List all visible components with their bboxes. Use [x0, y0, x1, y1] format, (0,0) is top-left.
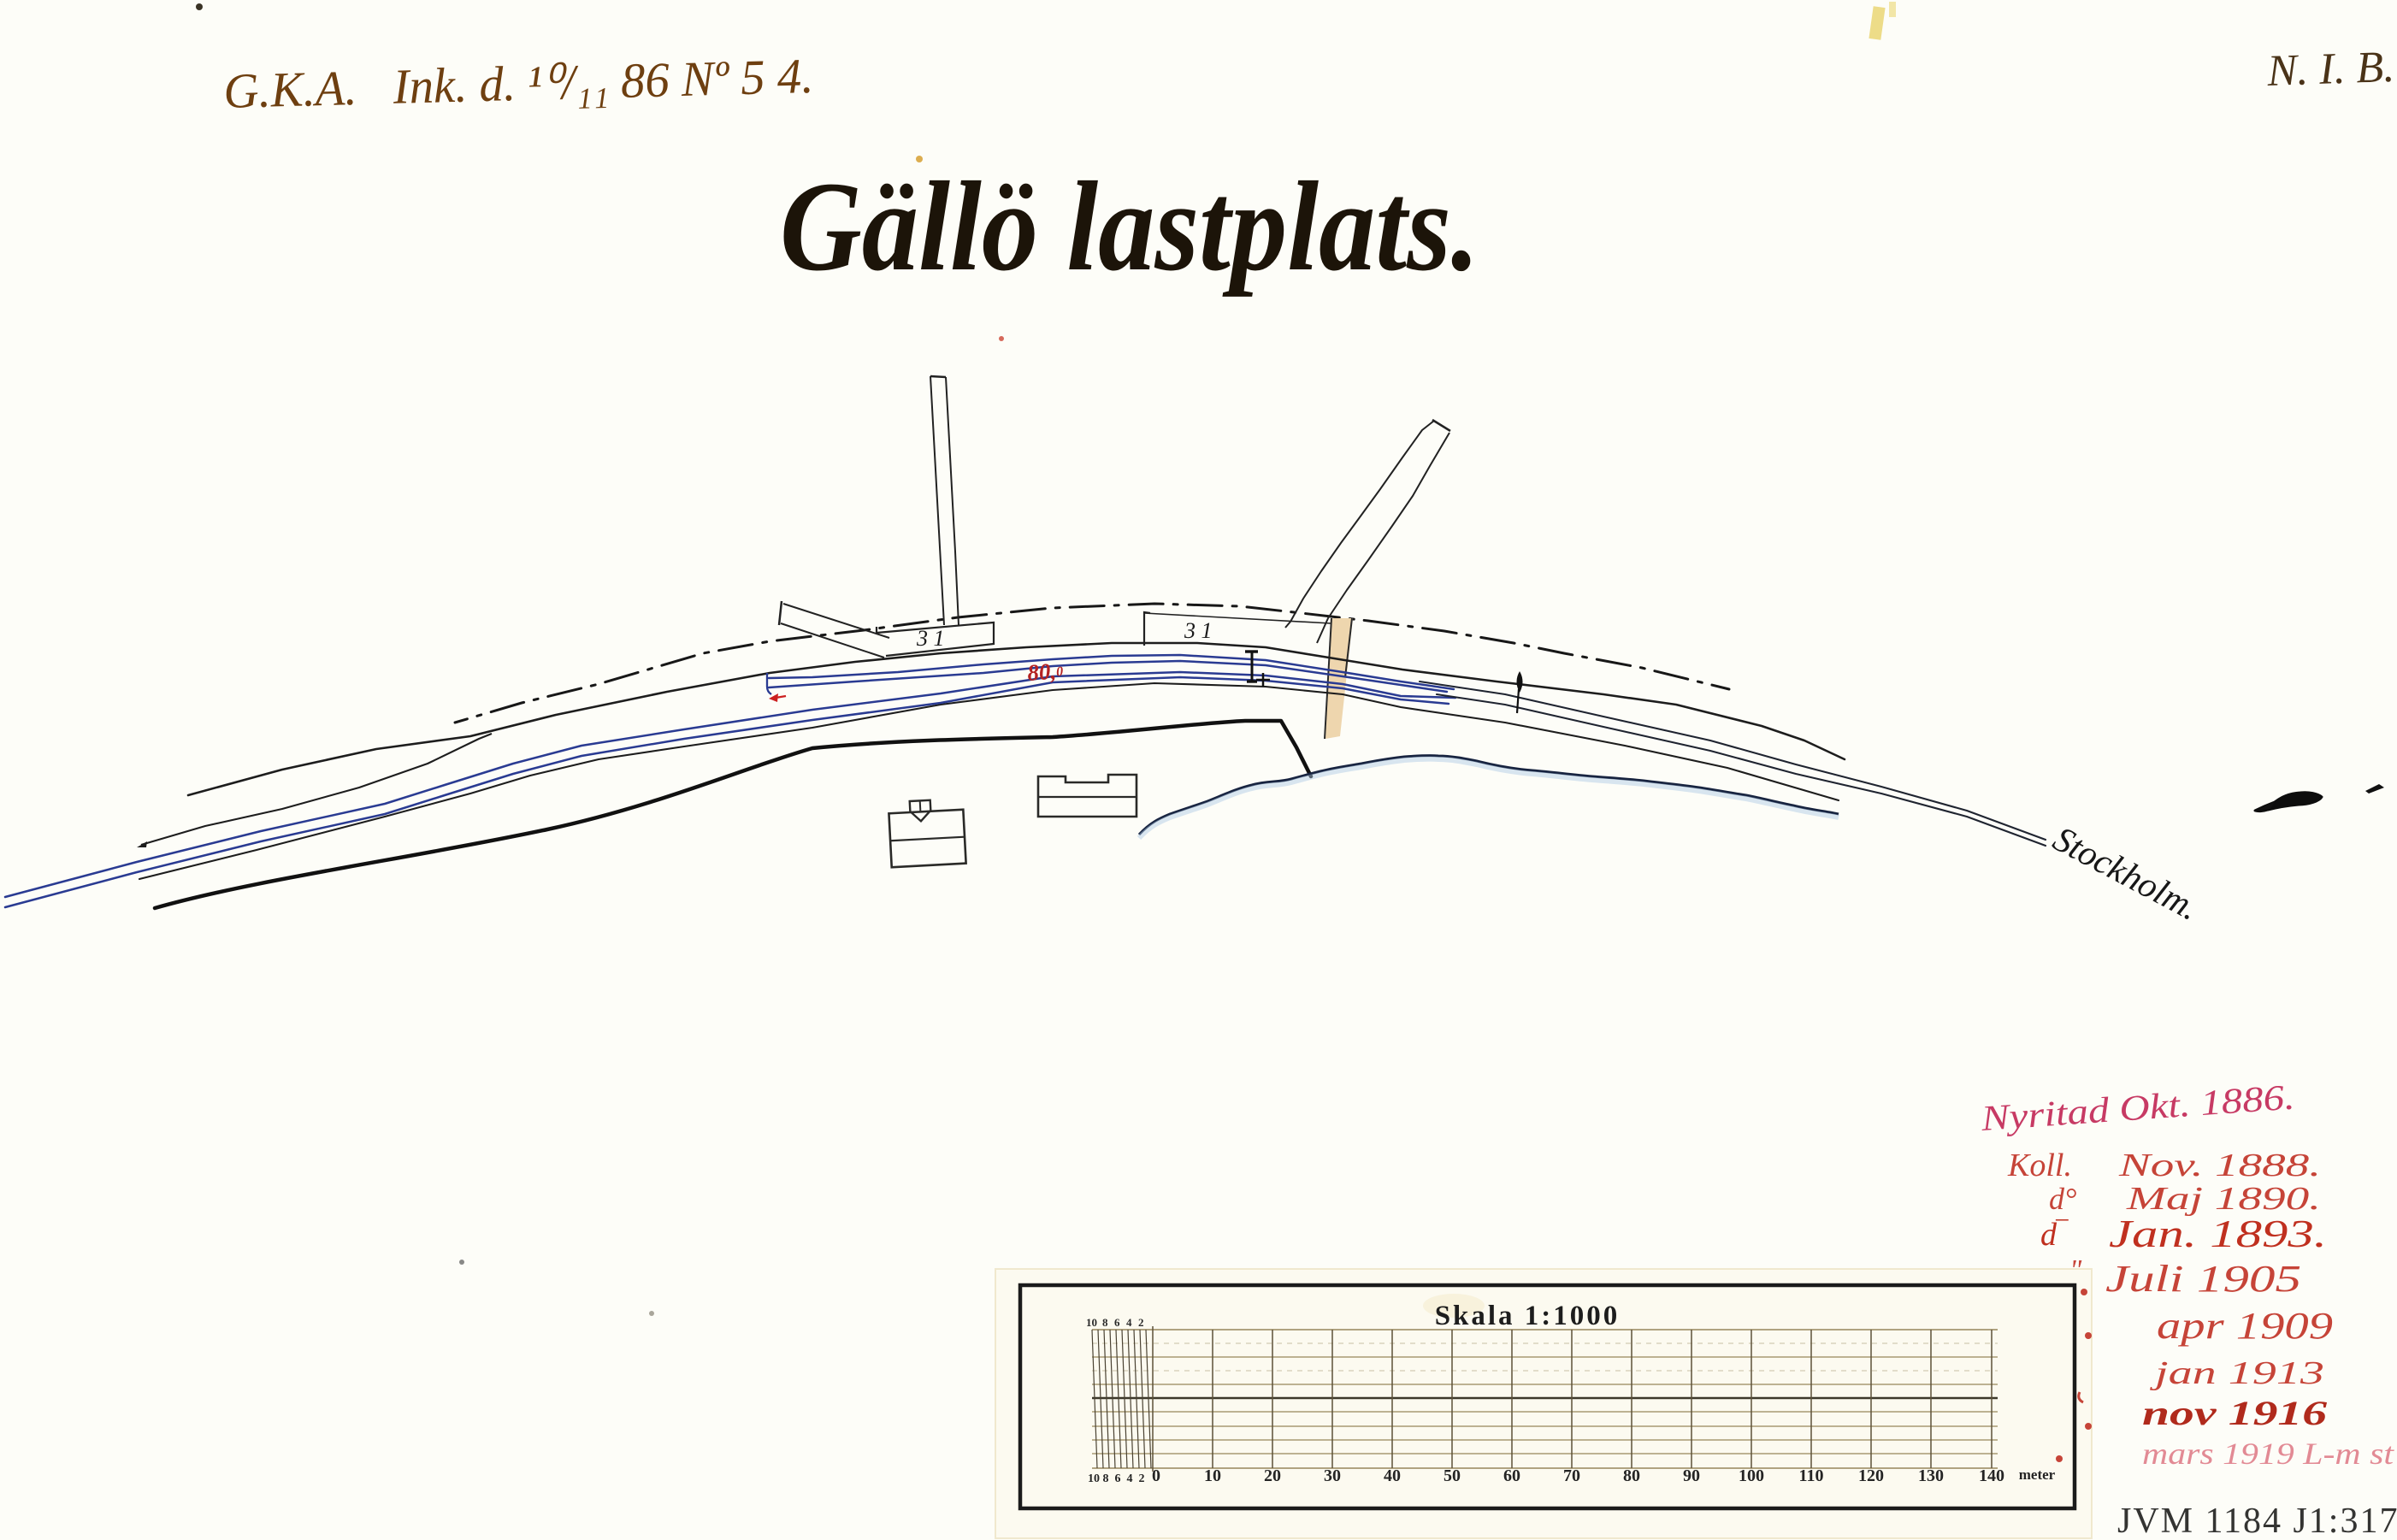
svg-text:6: 6: [1114, 1316, 1120, 1329]
svg-text:apr 1909: apr 1909: [2157, 1305, 2333, 1347]
svg-text:JVM 1184 J1:317: JVM 1184 J1:317: [2117, 1502, 2397, 1540]
svg-text:8: 8: [1102, 1316, 1108, 1329]
svg-text:110: 110: [1799, 1466, 1824, 1485]
svg-text:120: 120: [1858, 1466, 1884, 1485]
svg-text:60: 60: [1503, 1466, 1520, 1485]
svg-text:20: 20: [1264, 1466, 1281, 1485]
svg-text:80: 80: [1623, 1466, 1640, 1485]
svg-text:2: 2: [1139, 1472, 1145, 1485]
svg-text:N. I. B.: N. I. B.: [2265, 43, 2395, 96]
svg-text:10: 10: [1088, 1472, 1100, 1485]
svg-text:nov 1916: nov 1916: [2142, 1394, 2327, 1432]
svg-text:4: 4: [1126, 1316, 1132, 1329]
svg-text:meter: meter: [2019, 1466, 2056, 1483]
svg-text:4: 4: [1127, 1472, 1133, 1485]
svg-text:mars 1919 L-m st: mars 1919 L-m st: [2142, 1437, 2394, 1471]
svg-text:30: 30: [1324, 1466, 1341, 1485]
svg-text:Skala 1:1000: Skala 1:1000: [1435, 1301, 1621, 1331]
svg-text:40: 40: [1384, 1466, 1401, 1485]
svg-text:8: 8: [1103, 1472, 1109, 1485]
svg-text:": ": [2069, 1254, 2082, 1286]
svg-text:0: 0: [1152, 1466, 1160, 1485]
svg-text:90: 90: [1683, 1466, 1700, 1485]
svg-text:10: 10: [1204, 1466, 1221, 1485]
svg-text:d‾: d‾: [2040, 1217, 2069, 1253]
svg-text:6: 6: [1115, 1472, 1121, 1485]
svg-text:Koll.: Koll.: [2007, 1148, 2072, 1183]
svg-text:50: 50: [1444, 1466, 1461, 1485]
svg-text:70: 70: [1563, 1466, 1580, 1485]
svg-text:d°: d°: [2049, 1182, 2076, 1216]
svg-text:130: 130: [1918, 1466, 1944, 1485]
svg-text:Nov. 1888.: Nov. 1888.: [2118, 1148, 2321, 1183]
svg-text:Gällö lastplats.: Gällö lastplats.: [780, 156, 1479, 298]
svg-text:140: 140: [1979, 1466, 2004, 1485]
svg-text:Juli 1905: Juli 1905: [2105, 1258, 2301, 1300]
svg-text:jan 1913: jan 1913: [2149, 1355, 2324, 1391]
svg-text:100: 100: [1739, 1466, 1764, 1485]
svg-text:10: 10: [1086, 1316, 1097, 1329]
svg-text:3 1: 3 1: [1184, 618, 1213, 643]
svg-text:2: 2: [1138, 1316, 1144, 1329]
svg-text:3 1: 3 1: [916, 626, 945, 651]
svg-text:Jan. 1893.: Jan. 1893.: [2109, 1212, 2327, 1255]
